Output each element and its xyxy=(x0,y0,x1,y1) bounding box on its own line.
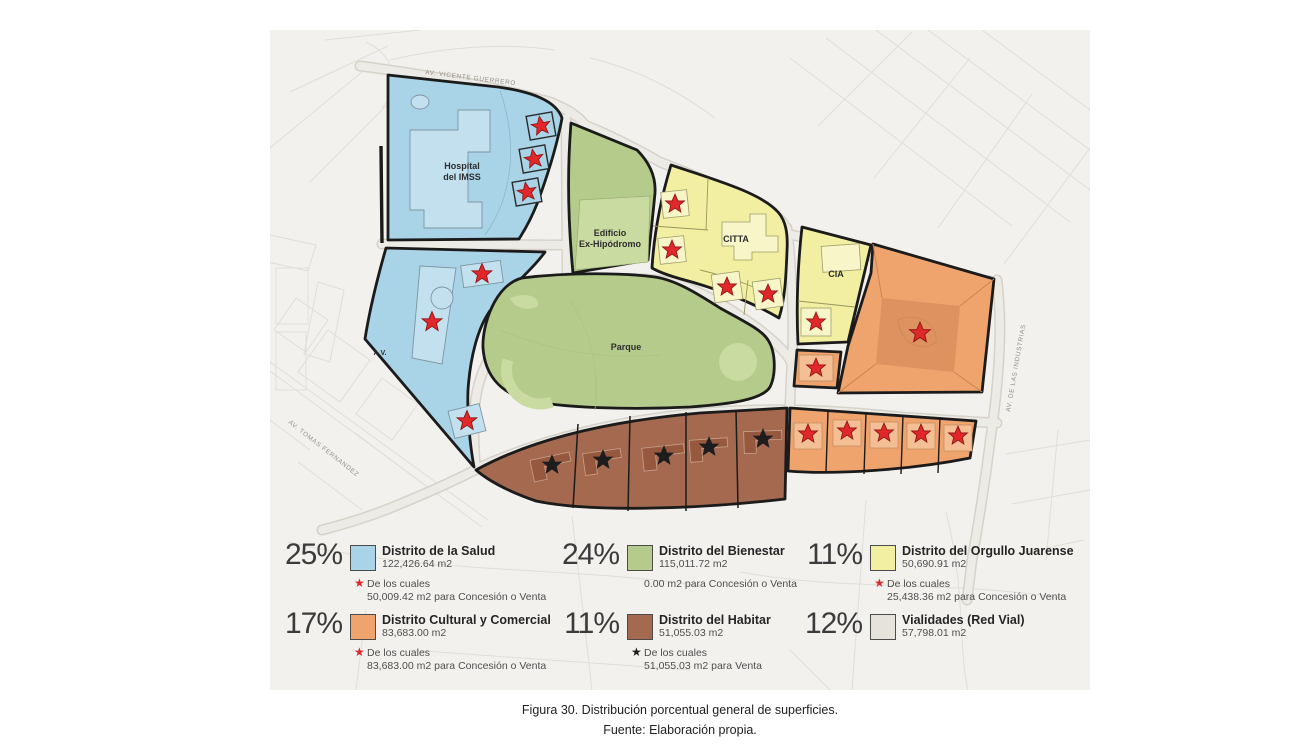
exhipodromo-label: Ex-Hipódromo xyxy=(579,239,642,249)
legend-item-cultural: 17% Distrito Cultural y Comercial 83,683… xyxy=(280,610,580,680)
concession-star-icon: ★ xyxy=(354,577,367,590)
legend-note: ★De los cuales 25,438.36 m2 para Concesi… xyxy=(874,577,1066,604)
legend-item-vialidades: 12% Vialidades (Red Vial) 57,798.01 m2 ★ xyxy=(800,610,1100,680)
legend-district-area: 115,011.72 m2 xyxy=(659,558,785,571)
legend-district-name: Distrito del Habitar xyxy=(659,613,771,627)
legend-district-area: 83,683.00 m2 xyxy=(382,627,551,640)
legend-district-name: Vialidades (Red Vial) xyxy=(902,613,1025,627)
legend-swatch-cultural xyxy=(350,614,376,640)
district-cultural-parcel xyxy=(794,350,841,388)
hospital-label: del IMSS xyxy=(443,172,481,182)
concession-star-icon: ★ xyxy=(354,646,367,659)
legend-percent: 12% xyxy=(800,607,862,641)
av-label: A.V. xyxy=(374,350,387,357)
legend-district-name: Distrito Cultural y Comercial xyxy=(382,613,551,627)
hospital-label: Hospital xyxy=(444,161,480,171)
citta-label: CITTA xyxy=(723,234,749,244)
cia-label: CIA xyxy=(828,269,844,279)
legend-district-name: Distrito del Orgullo Juarense xyxy=(902,544,1074,558)
parque-label: Parque xyxy=(611,342,642,352)
legend-percent: 11% xyxy=(557,607,619,641)
legend-swatch-bienestar xyxy=(627,545,653,571)
concession-parcel xyxy=(526,112,556,140)
concession-parcel xyxy=(512,178,542,206)
legend-note: ★De los cuales 83,683.00 m2 para Concesi… xyxy=(354,646,546,673)
legend-swatch-habitar xyxy=(627,614,653,640)
legend-district-area: 51,055.03 m2 xyxy=(659,627,771,640)
legend-note: ★0.00 m2 para Concesión o Venta xyxy=(631,577,797,591)
figure-page: Hospital del IMSS A.V. Edificio Ex-Hipód… xyxy=(0,0,1300,745)
legend-district-area: 50,690.91 m2 xyxy=(902,558,1074,571)
legend-item-salud: 25% Distrito de la Salud 122,426.64 m2 ★… xyxy=(280,541,580,611)
figure-source: Fuente: Elaboración propia. xyxy=(270,723,1090,737)
legend-district-name: Distrito de la Salud xyxy=(382,544,495,558)
legend-percent: 17% xyxy=(280,607,342,641)
legend-note: ★ xyxy=(874,646,887,660)
legend-note: ★De los cuales 50,009.42 m2 para Concesi… xyxy=(354,577,546,604)
legend-swatch-vialidades xyxy=(870,614,896,640)
legend-district-area: 57,798.01 m2 xyxy=(902,627,1025,640)
concession-parcel xyxy=(519,145,549,173)
figure-caption: Figura 30. Distribución porcentual gener… xyxy=(270,703,1090,717)
park-feature-circle xyxy=(719,343,757,381)
legend-percent: 24% xyxy=(557,538,619,572)
legend-swatch-salud xyxy=(350,545,376,571)
boundary-wall-line xyxy=(381,146,382,243)
legend-swatch-orgullo xyxy=(870,545,896,571)
legend-district-area: 122,426.64 m2 xyxy=(382,558,495,571)
legend-percent: 25% xyxy=(280,538,342,572)
legend-district-name: Distrito del Bienestar xyxy=(659,544,785,558)
legend-percent: 11% xyxy=(800,538,862,572)
concession-star-icon: ★ xyxy=(874,577,887,590)
legend-item-orgullo: 11% Distrito del Orgullo Juarense 50,690… xyxy=(800,541,1100,611)
venta-star-icon: ★ xyxy=(631,646,644,659)
legend-note: ★De los cuales 51,055.03 m2 para Venta xyxy=(631,646,762,673)
exhipodromo-label: Edificio xyxy=(594,228,627,238)
